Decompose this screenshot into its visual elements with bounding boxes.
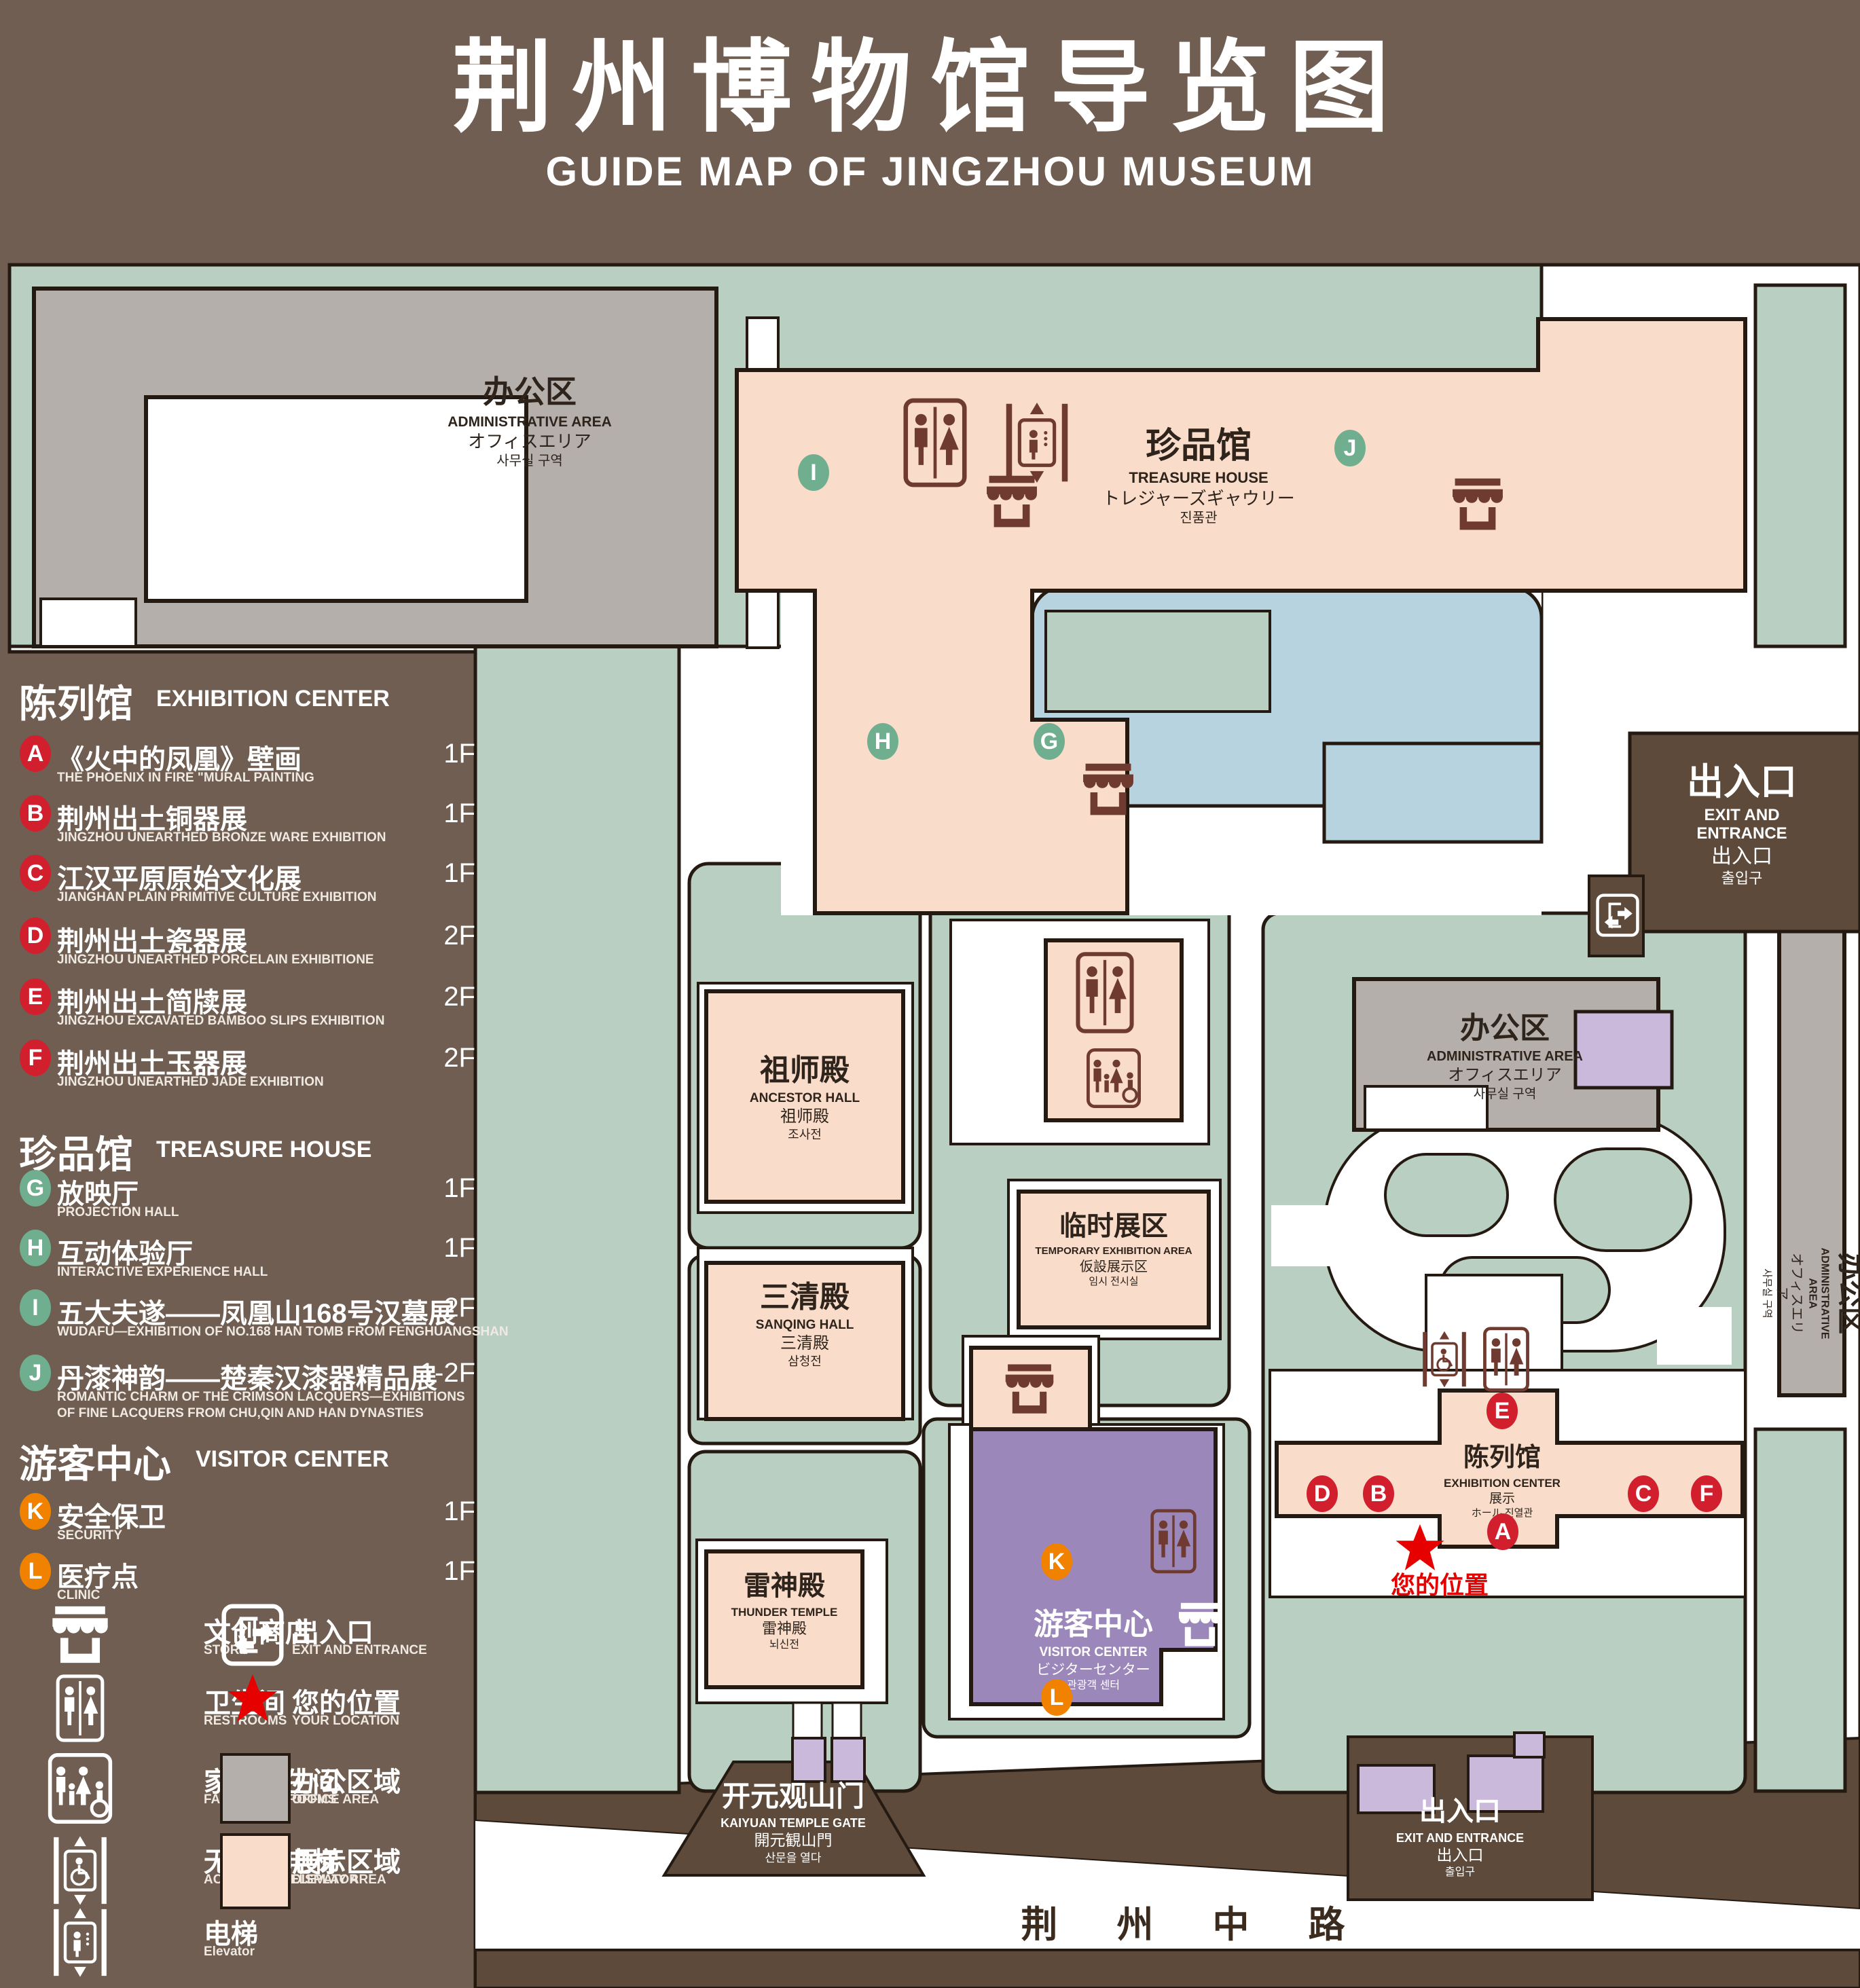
- building-label-line: 三清殿: [756, 1281, 854, 1314]
- legend-symbol-en: Elevator: [204, 1945, 255, 1959]
- building-label-line: 仮設展示区: [1035, 1259, 1192, 1274]
- building-label-treasure-house: 珍品馆TREASURE HOUSEトレジャーズギャウリー진품관: [1102, 426, 1294, 528]
- building-label-line: 雷神殿: [731, 1571, 838, 1602]
- building-label-line: トレジャーズギャウリー: [1102, 489, 1294, 509]
- building-label-sanqing-hall: 三清殿SANQING HALL三清殿삼청전: [756, 1281, 854, 1371]
- building-label-admin-top-left: 办公区ADMINISTRATIVE AREAオフィスエリア사무실 구역: [448, 375, 612, 471]
- building-label-line: 사무실 구역: [1760, 1248, 1772, 1340]
- map-marker-H: H: [867, 723, 898, 760]
- legend-section-title-en: TREASURE HOUSE: [156, 1137, 371, 1163]
- legend-section-title-zh: 陈列馆: [19, 674, 133, 729]
- building-label-line: 사무실 구역: [448, 454, 612, 468]
- building-label-line: 出入口: [1396, 1797, 1524, 1827]
- legend-marker-D: D: [20, 917, 51, 954]
- map-marker-L: L: [1041, 1679, 1072, 1716]
- building-label-exit-top-right: 出入口EXIT AND ENTRANCE出入口출입구: [1683, 762, 1801, 889]
- map-marker-I: I: [798, 454, 829, 491]
- building-label-line: ADMINISTRATIVE AREA: [448, 414, 612, 430]
- building-label-line: 开元观山门: [721, 1780, 866, 1812]
- legend-item-en: INTERACTIVE EXPERIENCE HALL: [57, 1264, 268, 1281]
- accessible-elevator-icon: [50, 1833, 110, 1908]
- store-icon: [1175, 1598, 1225, 1651]
- legend-symbol-en: DISPLAY AREA: [292, 1873, 386, 1888]
- building-label-exit-bottom: 出入口EXIT AND ENTRANCE出入口출입구: [1396, 1797, 1524, 1881]
- page-title: 荆州博物馆导览图: [452, 5, 1408, 151]
- restroom-icon: [1076, 951, 1134, 1035]
- building-label-line: 임시 전시실: [1035, 1276, 1192, 1288]
- exit-icon: [1596, 880, 1639, 951]
- building-label-line: 사무실 구역: [1427, 1087, 1583, 1101]
- map-marker-D: D: [1307, 1475, 1338, 1512]
- store-icon: [1448, 473, 1508, 536]
- legend-item-floor: 2F: [380, 921, 475, 951]
- building-label-admin-right: 办公区ADMINISTRATIVE AREAオフィスエリア사무실 구역: [1427, 1012, 1583, 1103]
- legend-marker-H: H: [20, 1230, 51, 1266]
- map-overlay: 荆州博物馆导览图 GUIDE MAP OF JINGZHOU MUSEUM 陈列…: [0, 0, 1860, 1988]
- building-label-line: ADMINISTRATIVE AREA: [1806, 1248, 1831, 1340]
- building-label-line: THUNDER TEMPLE: [731, 1606, 838, 1619]
- legend-marker-E: E: [20, 978, 51, 1015]
- legend-item-floor: 2F: [380, 982, 475, 1012]
- building-label-line: 진품관: [1102, 511, 1294, 526]
- accessible-elevator-icon: [1422, 1328, 1467, 1391]
- map-marker-K: K: [1041, 1543, 1072, 1580]
- building-label-line: TREASURE HOUSE: [1102, 470, 1294, 487]
- map-marker-E: E: [1487, 1393, 1518, 1429]
- map-marker-G: G: [1034, 723, 1065, 760]
- building-label-line: 办公区: [448, 375, 612, 410]
- building-label-line: KAIYUAN TEMPLE GATE: [721, 1816, 866, 1830]
- legend-item-floor: 1F: [380, 739, 475, 769]
- building-label-line: オフィスエリア: [1774, 1248, 1804, 1340]
- building-label-line: ビジターセンター: [1034, 1662, 1153, 1678]
- building-label-line: TEMPORARY EXHIBITION AREA: [1035, 1246, 1192, 1257]
- legend-marker-K: K: [20, 1493, 51, 1530]
- building-label-admin-right-vertical: 办公区ADMINISTRATIVE AREAオフィスエリア사무실 구역: [1758, 1248, 1860, 1340]
- restroom-icon: [1150, 1507, 1197, 1575]
- building-label-line: ADMINISTRATIVE AREA: [1427, 1049, 1583, 1064]
- legend-item-floor: 1F: [380, 1556, 475, 1587]
- building-label-line: 珍品馆: [1102, 426, 1294, 466]
- family-restroom-icon: [1085, 1048, 1142, 1108]
- legend-marker-L: L: [20, 1553, 51, 1589]
- legend-marker-B: B: [20, 795, 51, 832]
- store-icon: [1078, 758, 1138, 822]
- building-label-line: 陈列馆: [1444, 1443, 1561, 1473]
- legend-marker-J: J: [20, 1355, 51, 1391]
- legend-item-en: JIANGHAN PLAIN PRIMITIVE CULTURE EXHIBIT…: [57, 889, 376, 906]
- building-label-line: 办公区: [1835, 1248, 1860, 1340]
- building-label-line: 출입구: [1683, 870, 1801, 887]
- building-label-line: 開元観山門: [721, 1832, 866, 1849]
- building-label-line: 展示: [1444, 1492, 1561, 1506]
- building-label-line: 游客中心: [1034, 1608, 1153, 1641]
- building-label-ancestor-hall: 祖师殿ANCESTOR HALL祖师殿조사전: [750, 1054, 860, 1144]
- map-marker-B: B: [1363, 1475, 1394, 1512]
- legend-item-en: ROMANTIC CHARM OF THE CRIMSON LACQUERS—E…: [57, 1389, 465, 1422]
- legend-item-en: JINGZHOU UNEARTHED BRONZE WARE EXHIBITIO…: [57, 830, 386, 846]
- building-label-line: 조사전: [750, 1128, 860, 1141]
- legend-marker-G: G: [20, 1170, 51, 1207]
- store-icon: [40, 1604, 120, 1666]
- building-label-line: 临时展区: [1035, 1211, 1192, 1242]
- building-label-line: VISITOR CENTER: [1034, 1645, 1153, 1659]
- building-label-line: 办公区: [1427, 1012, 1583, 1045]
- legend-item-floor: 1F: [380, 858, 475, 889]
- legend-item-en: JINGZHOU UNEARTHED JADE EXHIBITION: [57, 1074, 324, 1090]
- building-label-line: 뇌신전: [731, 1639, 838, 1651]
- store-icon: [1001, 1359, 1058, 1419]
- building-label-line: 출입구: [1396, 1866, 1524, 1879]
- building-label-kaiyuan-gate: 开元观山门KAIYUAN TEMPLE GATE開元観山門산문을 열다: [721, 1780, 866, 1866]
- guide-map-page: 荆州博物馆导览图 GUIDE MAP OF JINGZHOU MUSEUM 陈列…: [0, 0, 1860, 1988]
- building-label-line: 祖师殿: [750, 1054, 860, 1087]
- legend-marker-F: F: [20, 1039, 51, 1076]
- exit-icon: [221, 1604, 284, 1666]
- building-label-line: 삼청전: [756, 1355, 854, 1368]
- legend-marker-A: A: [20, 735, 51, 772]
- building-label-exhibition-center: 陈列馆EXHIBITION CENTER展示ホール 진열관: [1444, 1443, 1561, 1522]
- building-label-line: 산문을 열다: [721, 1852, 866, 1864]
- legend-item-floor: 2F: [380, 1043, 475, 1073]
- restroom-icon: [903, 395, 967, 490]
- legend-item-en: JINGZHOU EXCAVATED BAMBOO SLIPS EXHIBITI…: [57, 1013, 384, 1029]
- building-label-line: 出入口: [1683, 762, 1801, 803]
- legend-item-floor: 2F: [380, 1293, 475, 1323]
- building-label-temporary-exhibition: 临时展区TEMPORARY EXHIBITION AREA仮設展示区임시 전시실: [1035, 1211, 1192, 1290]
- legend-item-floor: 1-2F: [380, 1358, 475, 1388]
- legend-item-floor: 1F: [380, 798, 475, 829]
- building-label-line: 出入口: [1683, 845, 1801, 868]
- legend-section-title-en: VISITOR CENTER: [196, 1446, 389, 1473]
- building-label-line: EXIT AND ENTRANCE: [1683, 807, 1801, 843]
- display-area-swatch: [220, 1833, 291, 1909]
- road-label: 荆 州 中 路: [1021, 1894, 1369, 1948]
- legend-symbol-en: EXIT AND ENTRANCE: [292, 1643, 427, 1658]
- legend-item-en: WUDAFU—EXHIBITION OF NO.168 HAN TOMB FRO…: [57, 1324, 509, 1340]
- restroom-icon: [48, 1674, 113, 1742]
- building-label-line: SANQING HALL: [756, 1318, 854, 1332]
- legend-item-en: THE PHOENIX IN FIRE "MURAL PAINTING: [57, 770, 314, 786]
- legend-item-floor: 1F: [380, 1496, 475, 1527]
- elevator-icon: [50, 1905, 110, 1980]
- legend-item-en: CLINIC: [57, 1587, 100, 1604]
- building-label-line: 祖师殿: [750, 1108, 860, 1126]
- restroom-icon: [1482, 1327, 1531, 1392]
- legend-symbol-en: OFFICE AREA: [292, 1792, 379, 1807]
- store-icon: [982, 470, 1042, 534]
- office-area-swatch: [220, 1753, 291, 1824]
- building-label-line: 出入口: [1396, 1847, 1524, 1864]
- map-marker-F: F: [1691, 1475, 1722, 1512]
- map-marker-A: A: [1487, 1513, 1518, 1550]
- legend-marker-C: C: [20, 855, 51, 891]
- building-label-line: 雷神殿: [731, 1621, 838, 1638]
- legend-marker-I: I: [20, 1289, 51, 1326]
- page-subtitle: GUIDE MAP OF JINGZHOU MUSEUM: [546, 148, 1315, 195]
- building-label-line: ANCESTOR HALL: [750, 1091, 860, 1105]
- legend-item-floor: 1F: [380, 1173, 475, 1204]
- location-star-icon: [227, 1674, 278, 1723]
- building-label-line: EXIT AND ENTRANCE: [1396, 1831, 1524, 1845]
- map-marker-C: C: [1628, 1475, 1659, 1512]
- building-label-line: 三清殿: [756, 1335, 854, 1353]
- family-restroom-icon: [46, 1753, 114, 1824]
- legend-symbol-en: YOUR LOCATION: [292, 1714, 399, 1729]
- legend-item-en: JINGZHOU UNEARTHED PORCELAIN EXHIBITIONE: [57, 952, 374, 968]
- building-label-line: オフィスエリア: [1427, 1067, 1583, 1085]
- legend-section-title-zh: 游客中心: [19, 1434, 171, 1489]
- legend-item-en: PROJECTION HALL: [57, 1204, 179, 1221]
- location-star-icon: [1395, 1524, 1445, 1572]
- building-label-line: EXHIBITION CENTER: [1444, 1477, 1561, 1490]
- map-marker-J: J: [1334, 430, 1366, 466]
- legend-item-floor: 1F: [380, 1233, 475, 1264]
- building-label-thunder-temple: 雷神殿THUNDER TEMPLE雷神殿뇌신전: [731, 1571, 838, 1653]
- legend-item-en: SECURITY: [57, 1528, 122, 1544]
- legend-section-title-en: EXHIBITION CENTER: [156, 686, 390, 712]
- building-label-line: オフィスエリア: [448, 432, 612, 452]
